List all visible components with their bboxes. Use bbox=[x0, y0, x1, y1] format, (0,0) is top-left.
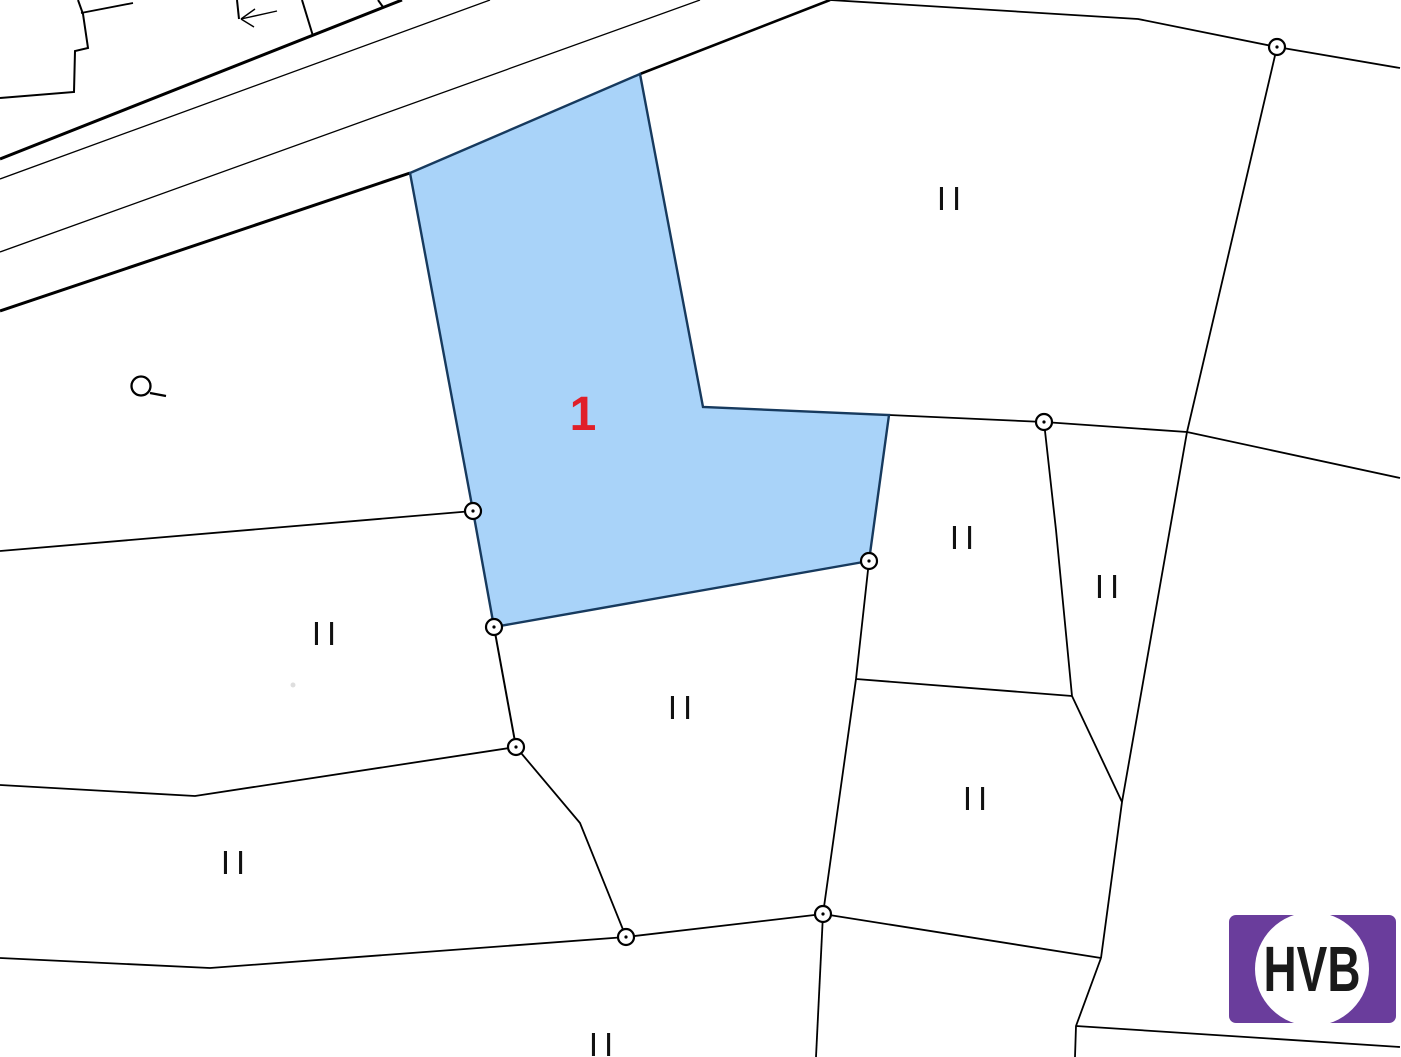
boundary-south-1 bbox=[823, 914, 1101, 958]
vertex-marker-dot bbox=[471, 509, 474, 512]
cadastral-map-page: IIIIIIIIIIIIIIII1HVB bbox=[0, 0, 1401, 1057]
zone-label: II bbox=[963, 780, 993, 817]
vertex-marker-dot bbox=[821, 912, 824, 915]
boundary-right-parcel-west bbox=[1044, 422, 1072, 696]
faint-mark bbox=[291, 683, 296, 688]
boundary-northeast bbox=[1277, 47, 1400, 68]
cadastral-map-svg: IIIIIIIIIIIIIIII1HVB bbox=[0, 0, 1401, 1057]
road-edge-lower-west bbox=[0, 173, 410, 311]
boundary-mid-south bbox=[516, 747, 626, 937]
zone-label: II bbox=[589, 1026, 619, 1057]
boundary-south-3 bbox=[1076, 1026, 1400, 1047]
vertex-marker-dot bbox=[1275, 45, 1278, 48]
vertex-marker-dot bbox=[867, 559, 870, 562]
zone-label: II bbox=[1095, 568, 1125, 605]
building-edge-a bbox=[237, 0, 239, 19]
boundary-right-diagonal bbox=[1072, 696, 1122, 802]
boundary-bottom-2 bbox=[816, 914, 823, 1057]
boundary-west-3 bbox=[0, 937, 626, 968]
lamp-symbol-icon bbox=[132, 377, 151, 396]
boundary-left-edge bbox=[494, 627, 516, 747]
boundary-right-parcel-south bbox=[856, 679, 1072, 696]
zone-label: II bbox=[312, 615, 342, 652]
zone-label: II bbox=[668, 689, 698, 726]
vertex-marker-dot bbox=[514, 745, 517, 748]
vertex-marker-dot bbox=[1042, 420, 1045, 423]
building-steps bbox=[0, 0, 88, 98]
hvb-logo-text: HVB bbox=[1264, 933, 1361, 1005]
parcel-1-polygon[interactable] bbox=[410, 74, 889, 627]
zone-label: II bbox=[221, 844, 251, 881]
vertex-marker-dot bbox=[492, 625, 495, 628]
zone-label: II bbox=[937, 180, 967, 217]
arrow-barb-2 bbox=[241, 19, 254, 27]
boundary-west-1 bbox=[0, 511, 473, 551]
building-edge-b bbox=[302, 0, 313, 36]
boundary-south-2 bbox=[1075, 958, 1101, 1057]
zone-label: II bbox=[950, 519, 980, 556]
boundary-north bbox=[830, 0, 1277, 47]
lamp-symbol-tail bbox=[150, 393, 166, 396]
parcel-1-label: 1 bbox=[570, 388, 597, 441]
boundary-east-long bbox=[1101, 432, 1187, 958]
boundary-middle-east bbox=[823, 561, 869, 914]
building-roof bbox=[81, 3, 133, 13]
building-edge-c bbox=[378, 0, 383, 7]
boundary-mid bbox=[889, 415, 1400, 478]
boundary-west-2 bbox=[0, 747, 516, 796]
boundary-east-upper bbox=[1187, 47, 1277, 432]
boundary-bottom-1 bbox=[626, 914, 823, 937]
road-edge-upper bbox=[0, 0, 402, 159]
vertex-marker-dot bbox=[624, 935, 627, 938]
